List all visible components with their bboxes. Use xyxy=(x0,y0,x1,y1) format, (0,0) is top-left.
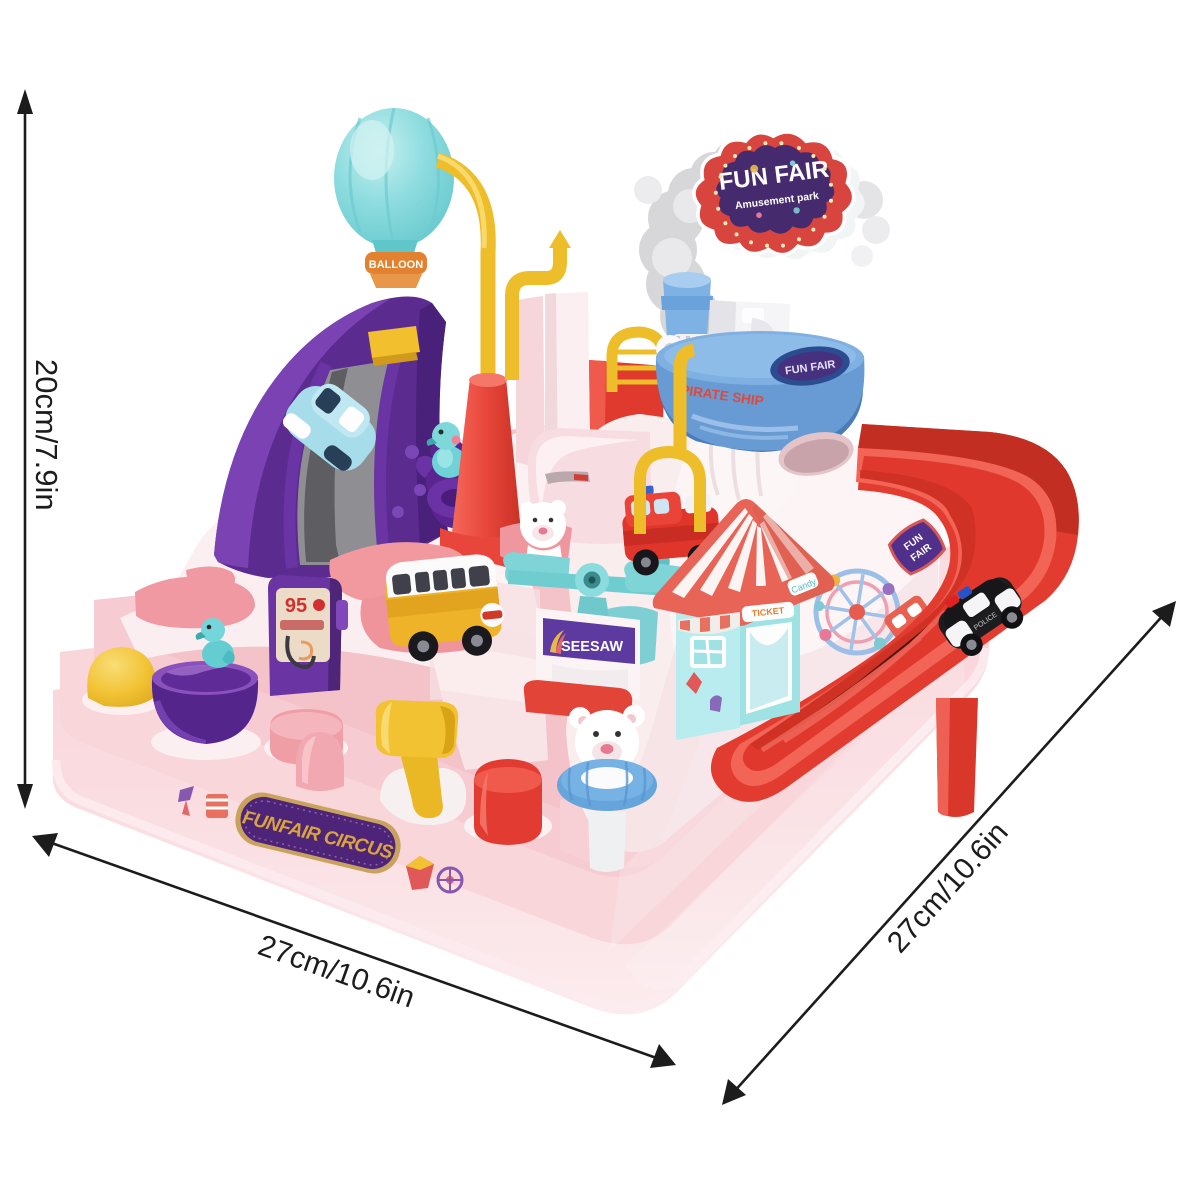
svg-text:SEESAW: SEESAW xyxy=(561,639,623,655)
svg-text:95: 95 xyxy=(285,595,307,617)
svg-text:BALLOON: BALLOON xyxy=(369,259,423,271)
svg-text:20cm/7.9in: 20cm/7.9in xyxy=(29,359,64,511)
